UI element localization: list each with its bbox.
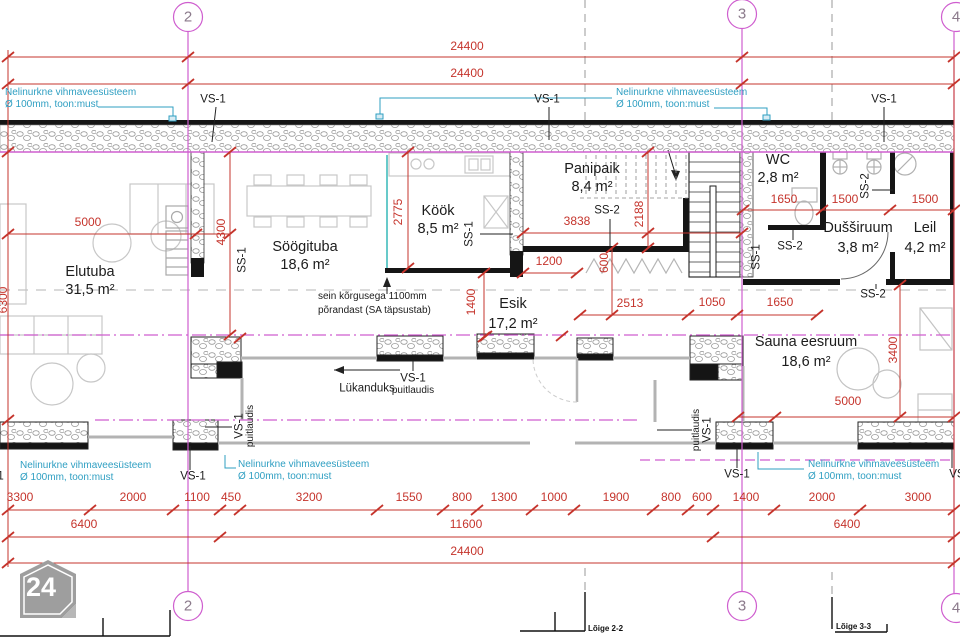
logo-number: 24 — [26, 572, 56, 603]
door-arc-duss — [841, 232, 888, 279]
grid-lines — [0, 0, 960, 623]
washbasin-circles — [837, 348, 901, 398]
dining-table — [247, 175, 371, 227]
stair-direction-arrow — [671, 170, 680, 181]
wall-sauna-top — [743, 279, 840, 285]
grid-bubble-2-top — [174, 3, 203, 32]
grid-bubble-3-bottom — [728, 592, 757, 621]
sauna-stove-icon — [894, 153, 916, 175]
toilet-icon — [792, 188, 817, 225]
wall-wc — [820, 152, 826, 230]
stove-icon — [166, 206, 188, 275]
staircase — [668, 150, 740, 277]
wall-esik-top — [523, 246, 689, 252]
sein-note-arrow — [383, 277, 391, 287]
grid-bubble-4-bottom — [942, 594, 960, 623]
wall-duss-leil — [890, 152, 895, 194]
grid-bubble-3-top — [728, 0, 757, 29]
kitchen-counter — [389, 153, 510, 228]
floor-plan-drawing — [0, 0, 960, 640]
shower-icons — [833, 152, 881, 174]
grid-bubble-2-bottom — [174, 592, 203, 621]
lukanduks-arrow — [334, 366, 344, 374]
terrace-piers — [0, 334, 954, 450]
furniture — [0, 152, 952, 442]
door-arc-terrace — [533, 358, 577, 402]
wall-kook-divider — [510, 152, 523, 255]
exterior-wall-top — [0, 120, 954, 125]
grid-bubble-4-top — [942, 3, 960, 32]
sheet-logo: 24 — [16, 558, 80, 622]
wall-elutuba-divider — [191, 152, 204, 263]
coat-rack-zigzag — [586, 259, 682, 273]
floor-plan-sheet: 2440024400Nelinurkne vihmaveesüsteemØ 10… — [0, 0, 960, 640]
